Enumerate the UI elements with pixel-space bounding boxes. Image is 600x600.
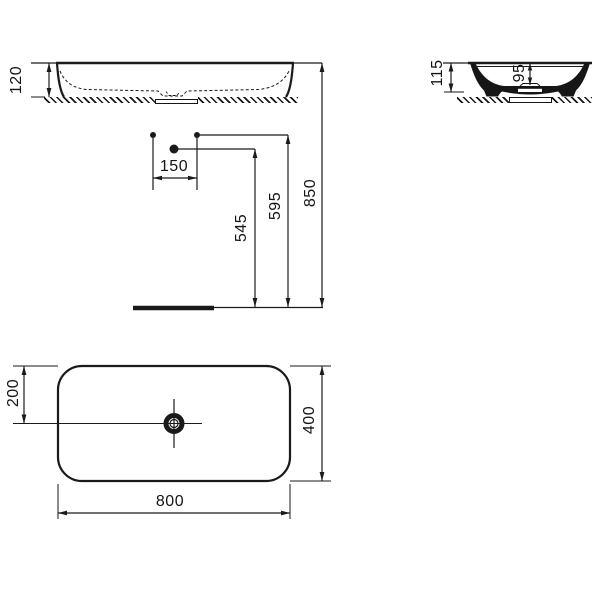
tap-hole-height-label: 545 (233, 214, 251, 242)
arrow-up-icon (22, 366, 27, 375)
arrow-down-icon (449, 84, 454, 93)
arrow-up-icon (320, 366, 325, 375)
front-left-wall (57, 63, 64, 97)
countertop-cutout-side (509, 97, 552, 103)
arrow-up-icon (253, 149, 258, 158)
countertop-hatch-side-right (552, 97, 592, 103)
arrow-down-icon (22, 415, 27, 424)
arrow-up-icon (449, 63, 454, 72)
countertop-hatch-front-left (44, 97, 155, 103)
arrow-down-icon (253, 298, 258, 307)
side-inner-depth-label: 95 (511, 64, 529, 83)
arrow-left-icon (153, 176, 162, 181)
arrow-up-icon (320, 63, 325, 72)
plan-width-label: 800 (156, 493, 184, 511)
arrow-down-icon (286, 298, 291, 307)
arrow-down-icon (47, 88, 52, 97)
arrow-up-icon (47, 63, 52, 72)
arrow-down-icon (320, 298, 325, 307)
hole-spacing-label: 150 (160, 158, 188, 176)
arrow-left-icon (58, 511, 67, 516)
countertop-cutout-front (155, 99, 198, 104)
arrow-up-icon (286, 135, 291, 144)
front-inner-contour-dashed (60, 71, 289, 96)
arrow-down-icon (320, 472, 325, 481)
arrow-right-icon (188, 176, 197, 181)
side-height-dimension (444, 63, 464, 92)
countertop-hatch-front-right (198, 97, 298, 103)
rim-height-label: 850 (302, 179, 320, 207)
front-right-wall (286, 63, 293, 97)
front-view (31, 63, 322, 97)
technical-drawing-canvas (0, 0, 600, 600)
front-drain-dashed (166, 92, 180, 96)
side-drain-slot (518, 89, 542, 92)
tap-hole-dot (170, 145, 179, 154)
technical-drawing-page: 120 115 95 150 545 595 850 200 400 800 (0, 0, 600, 600)
countertop-hatch-side-left (457, 97, 509, 103)
plan-depth-label: 400 (301, 406, 319, 434)
fixing-hole-dot-right (194, 132, 200, 138)
front-height-label: 120 (8, 66, 26, 94)
side-height-label: 115 (429, 59, 447, 86)
arrow-right-icon (281, 511, 290, 516)
drain-offset-label: 200 (5, 379, 23, 407)
fixing-hole-dot-left (150, 132, 156, 138)
front-height-dimension (31, 63, 51, 97)
fixing-hole-height-label: 595 (267, 192, 285, 220)
